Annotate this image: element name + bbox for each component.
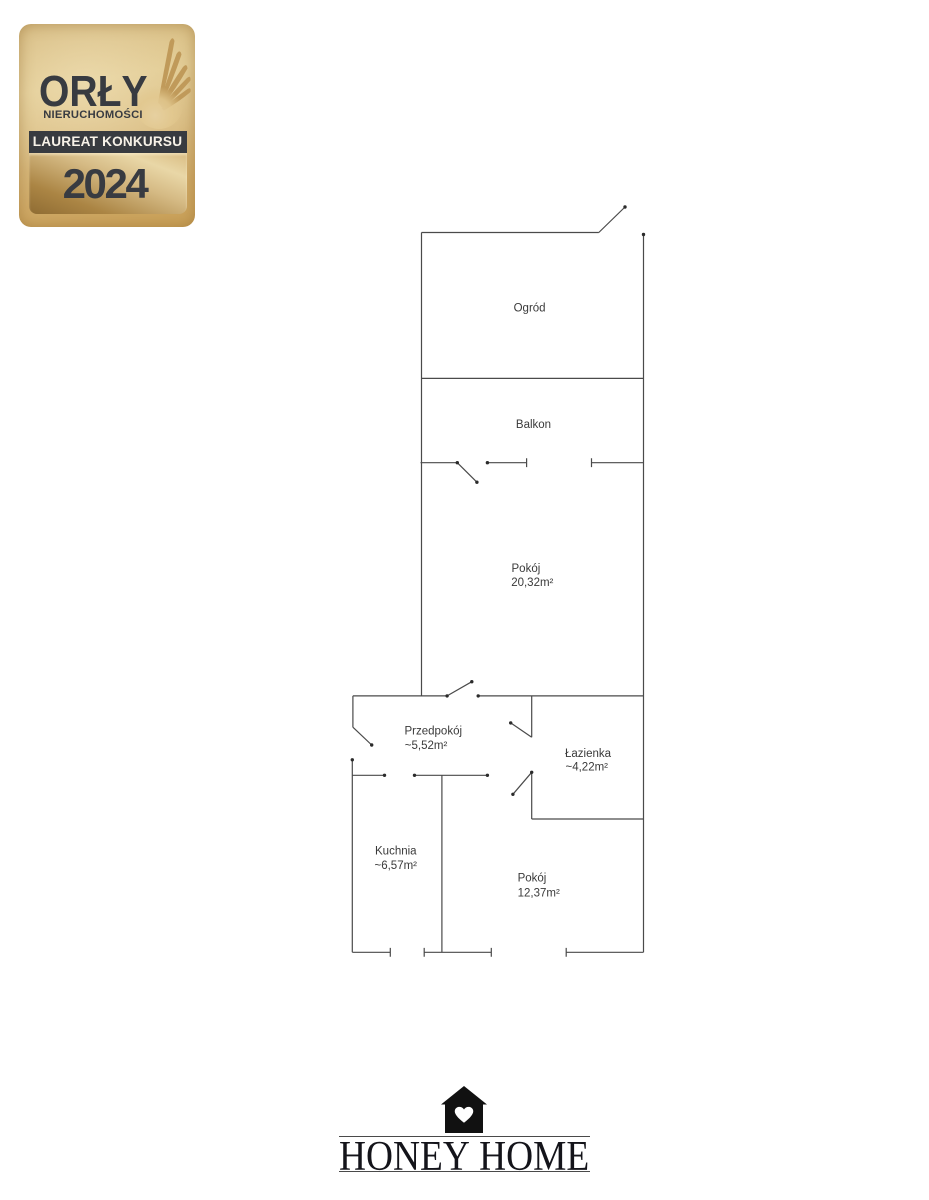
- svg-text:Przedpokój: Przedpokój: [405, 726, 463, 738]
- svg-text:12,37m²: 12,37m²: [518, 888, 560, 900]
- svg-text:20,32m²: 20,32m²: [511, 577, 553, 589]
- svg-text:~5,52m²: ~5,52m²: [405, 740, 448, 752]
- svg-text:~4,22m²: ~4,22m²: [566, 762, 609, 774]
- svg-text:Balkon: Balkon: [516, 419, 551, 431]
- svg-text:Kuchnia: Kuchnia: [375, 846, 417, 858]
- svg-text:Pokój: Pokój: [518, 873, 547, 885]
- svg-text:~6,57m²: ~6,57m²: [375, 860, 418, 872]
- svg-text:Pokój: Pokój: [512, 563, 541, 575]
- svg-text:Łazienka: Łazienka: [565, 748, 612, 760]
- svg-text:Ogród: Ogród: [514, 303, 546, 315]
